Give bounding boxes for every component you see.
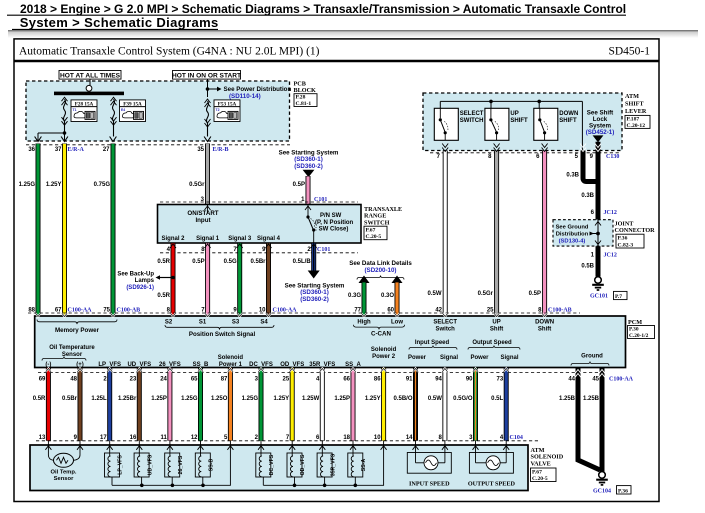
svg-text:11: 11: [161, 435, 168, 441]
svg-text:Signal 3: Signal 3: [228, 236, 252, 242]
svg-text:C100-AB: C100-AB: [117, 307, 141, 313]
svg-text:Memory Power: Memory Power: [55, 327, 100, 334]
svg-text:25: 25: [487, 307, 494, 313]
svg-text:0.5W: 0.5W: [427, 291, 441, 297]
svg-text:66: 66: [343, 377, 350, 383]
svg-text:ATM: ATM: [625, 93, 639, 100]
svg-text:1.25P: 1.25P: [151, 396, 167, 402]
svg-text:Position Switch Signal: Position Switch Signal: [189, 331, 256, 338]
svg-text:0.5G: 0.5G: [224, 259, 237, 265]
svg-text:0.5P: 0.5P: [192, 259, 204, 265]
svg-text:(SD200-10): (SD200-10): [365, 267, 397, 274]
svg-text:P.36: P.36: [618, 489, 628, 495]
svg-text:E/R-B: E/R-B: [213, 147, 229, 153]
svg-text:P.67: P.67: [366, 227, 376, 233]
svg-text:16: 16: [130, 435, 137, 441]
svg-text:0.3B: 0.3B: [566, 172, 579, 178]
svg-text:PCM: PCM: [628, 319, 642, 326]
svg-text:1.25Y: 1.25Y: [274, 396, 290, 402]
svg-text:Distribution: Distribution: [556, 231, 589, 237]
svg-text:27: 27: [103, 147, 110, 153]
svg-text:DOWN: DOWN: [559, 111, 578, 117]
svg-text:LP_VFS: LP_VFS: [118, 455, 124, 475]
svg-text:SWITCH: SWITCH: [364, 219, 390, 226]
svg-text:35: 35: [197, 147, 204, 153]
svg-text:0.5R: 0.5R: [33, 396, 46, 402]
svg-text:T2: T2: [216, 108, 220, 112]
svg-text:Power 2: Power 2: [372, 354, 396, 360]
svg-text:Output Speed: Output Speed: [472, 340, 512, 346]
svg-text:Signal 1: Signal 1: [196, 236, 220, 242]
svg-text:GC101: GC101: [590, 294, 608, 300]
svg-text:C-CAN: C-CAN: [371, 331, 391, 338]
svg-text:P.67: P.67: [532, 469, 542, 475]
svg-text:GC104: GC104: [593, 488, 611, 494]
svg-text:17: 17: [100, 435, 107, 441]
svg-text:C.81-1: C.81-1: [296, 101, 312, 107]
svg-text:See Ground: See Ground: [556, 224, 589, 230]
svg-text:12: 12: [191, 435, 198, 441]
svg-text:(SD360-2): (SD360-2): [300, 296, 329, 303]
svg-text:18: 18: [343, 435, 350, 441]
svg-text:Power: Power: [408, 355, 427, 361]
svg-text:86: 86: [374, 377, 381, 383]
svg-text:SS_B: SS_B: [193, 362, 209, 368]
svg-text:1.25B: 1.25B: [559, 396, 576, 402]
svg-text:0.5R: 0.5R: [157, 293, 170, 299]
svg-text:60: 60: [387, 307, 394, 313]
svg-text:C100-AA: C100-AA: [609, 377, 634, 383]
svg-text:Low: Low: [391, 319, 403, 325]
svg-text:T1: T1: [73, 108, 77, 112]
svg-text:1.25Y: 1.25Y: [46, 182, 62, 188]
svg-text:0.3O: 0.3O: [381, 293, 394, 299]
svg-text:10: 10: [374, 435, 381, 441]
svg-text:CONNECTOR: CONNECTOR: [615, 227, 656, 234]
svg-text:Shift: Shift: [490, 326, 503, 332]
svg-text:14: 14: [406, 435, 413, 441]
svg-text:VALVE: VALVE: [531, 460, 551, 467]
svg-text:42: 42: [435, 307, 442, 313]
svg-text:44: 44: [568, 377, 575, 383]
svg-text:0.5B: 0.5B: [581, 264, 594, 270]
svg-text:Power 1: Power 1: [219, 362, 243, 368]
svg-text:Oil Temperature: Oil Temperature: [49, 345, 95, 351]
svg-text:S2: S2: [165, 319, 173, 325]
svg-text:ON/START: ON/START: [187, 210, 218, 217]
svg-text:(SD130-4): (SD130-4): [559, 238, 586, 244]
svg-text:LEVER: LEVER: [625, 108, 647, 115]
svg-text:SS-B: SS-B: [209, 459, 215, 472]
svg-text:F39 15A: F39 15A: [123, 102, 142, 108]
svg-text:JC12: JC12: [604, 252, 617, 258]
svg-text:SHIFT: SHIFT: [510, 118, 528, 124]
svg-text:Oil Temp.: Oil Temp.: [51, 469, 77, 475]
svg-text:Solenoid: Solenoid: [371, 347, 397, 353]
svg-text:UD_VFS: UD_VFS: [147, 454, 153, 475]
svg-text:Sensor: Sensor: [62, 352, 83, 358]
svg-text:0.5G/O: 0.5G/O: [453, 396, 473, 402]
svg-text:E4: E4: [121, 108, 125, 112]
svg-text:65: 65: [191, 377, 198, 383]
svg-text:1.25P: 1.25P: [334, 396, 350, 402]
svg-text:C100-AA: C100-AA: [273, 307, 298, 313]
svg-text:Signal 4: Signal 4: [257, 236, 281, 242]
svg-text:0.5Br: 0.5Br: [62, 396, 78, 402]
svg-text:C101: C101: [314, 197, 327, 203]
svg-text:P.28: P.28: [296, 95, 306, 101]
svg-text:C100-AA: C100-AA: [68, 307, 93, 313]
svg-text:Solenoid: Solenoid: [218, 355, 244, 361]
svg-text:Sensor: Sensor: [54, 476, 74, 482]
svg-text:0.5P: 0.5P: [529, 291, 541, 297]
svg-text:Automatic Transaxle Control Sy: Automatic Transaxle Control System (G4NA…: [19, 46, 320, 58]
svg-text:35R_VFS: 35R_VFS: [330, 453, 336, 476]
svg-text:1.25Y: 1.25Y: [365, 396, 381, 402]
svg-text:SHIFT: SHIFT: [559, 118, 577, 124]
svg-text:C.20-5: C.20-5: [532, 476, 548, 482]
svg-text:48: 48: [70, 377, 77, 383]
svg-text:Ground: Ground: [581, 353, 603, 359]
svg-text:90: 90: [466, 377, 473, 383]
svg-text:0.5R: 0.5R: [157, 259, 170, 265]
svg-text:88: 88: [28, 307, 35, 313]
svg-text:Lamps: Lamps: [135, 278, 155, 284]
svg-text:91: 91: [406, 377, 413, 383]
svg-text:DOWN: DOWN: [535, 319, 554, 325]
svg-text:: SW Close): : SW Close): [315, 227, 348, 233]
svg-text:High: High: [357, 319, 371, 325]
svg-text:Input Speed: Input Speed: [415, 340, 450, 346]
svg-text:0.5W: 0.5W: [428, 396, 442, 402]
svg-text:C.20-12: C.20-12: [627, 123, 646, 129]
svg-text:UP: UP: [492, 319, 500, 325]
svg-text:77: 77: [354, 307, 361, 313]
svg-text:C130: C130: [606, 154, 619, 160]
svg-text:1.25O: 1.25O: [211, 396, 228, 402]
svg-text:SS-A: SS-A: [361, 459, 367, 472]
svg-text:C101: C101: [317, 247, 330, 253]
svg-text:P.187: P.187: [627, 116, 640, 122]
svg-text:45: 45: [592, 377, 599, 383]
svg-text:P.7: P.7: [615, 294, 622, 300]
svg-text:1.25G: 1.25G: [242, 396, 259, 402]
svg-text:OD_VFS: OD_VFS: [300, 454, 306, 475]
svg-text:E/R-A: E/R-A: [68, 147, 85, 153]
svg-text:See Back-Up: See Back-Up: [117, 272, 154, 278]
svg-text:25: 25: [283, 377, 290, 383]
svg-text:P/N SW: P/N SW: [320, 213, 342, 219]
svg-text:Input: Input: [195, 217, 210, 224]
svg-text:1.25B: 1.25B: [583, 396, 600, 402]
svg-text:S3: S3: [232, 319, 240, 325]
svg-text:SS_A: SS_A: [345, 362, 361, 368]
svg-text:UP: UP: [510, 111, 518, 117]
svg-text:HOT AT ALL TIMES: HOT AT ALL TIMES: [60, 73, 121, 80]
svg-text:0.3G: 0.3G: [348, 293, 361, 299]
svg-text:Shift: Shift: [538, 326, 551, 332]
svg-text:F53 15A: F53 15A: [218, 102, 237, 108]
svg-text:75: 75: [103, 307, 110, 313]
svg-text:JC12: JC12: [604, 210, 617, 216]
svg-text:Signal 2: Signal 2: [161, 236, 185, 242]
svg-text:23: 23: [130, 377, 137, 383]
svg-text:C.20-5: C.20-5: [366, 234, 382, 240]
svg-text:BLOCK: BLOCK: [294, 87, 317, 94]
svg-text:69: 69: [39, 377, 46, 383]
svg-text:Power: Power: [470, 355, 489, 361]
svg-text:(SD926-1): (SD926-1): [126, 285, 154, 291]
svg-text:1.25G: 1.25G: [181, 396, 198, 402]
svg-text:26_VFS: 26_VFS: [178, 455, 184, 474]
svg-text:1.25W: 1.25W: [302, 396, 320, 402]
svg-text:67: 67: [55, 307, 62, 313]
svg-text:36: 36: [28, 147, 35, 153]
svg-text:87: 87: [221, 377, 228, 383]
svg-text:0.5P: 0.5P: [293, 182, 305, 188]
svg-text:1.25Br: 1.25Br: [118, 396, 137, 402]
svg-text:0.5L/B: 0.5L/B: [293, 259, 312, 265]
svg-text:P.36: P.36: [618, 236, 628, 242]
svg-text:C.20-1/2: C.20-1/2: [629, 333, 649, 339]
svg-text:1.25G: 1.25G: [19, 182, 36, 188]
svg-text:10: 10: [259, 307, 266, 313]
svg-text:0.75G: 0.75G: [94, 182, 111, 188]
svg-text:SHIFT: SHIFT: [625, 100, 644, 107]
svg-text:DC_VFS: DC_VFS: [269, 454, 275, 475]
svg-text:0.5Gr: 0.5Gr: [189, 182, 205, 188]
svg-text:Signal: Signal: [440, 355, 458, 361]
svg-text:37: 37: [55, 147, 62, 153]
svg-text:94: 94: [435, 377, 442, 383]
svg-text:24: 24: [160, 377, 167, 383]
svg-text:OUTPUT SPEED: OUTPUT SPEED: [468, 480, 516, 487]
svg-text:P.30: P.30: [629, 327, 639, 333]
svg-text:0.5Gr: 0.5Gr: [478, 291, 494, 297]
svg-text:1.25L: 1.25L: [91, 396, 107, 402]
svg-text:0.3B: 0.3B: [581, 193, 594, 199]
svg-text:0.5B/O: 0.5B/O: [393, 396, 412, 402]
svg-text:(P, N Position: (P, N Position: [315, 220, 354, 226]
svg-text:(SD452-1): (SD452-1): [586, 129, 615, 136]
svg-text:SWITCH: SWITCH: [460, 118, 484, 124]
svg-text:S1: S1: [199, 319, 207, 325]
svg-text:C.82-3: C.82-3: [618, 243, 634, 249]
svg-text:HOT IN ON OR START: HOT IN ON OR START: [172, 73, 241, 80]
svg-text:C104: C104: [510, 435, 523, 441]
svg-text:C100-AB: C100-AB: [548, 307, 572, 313]
svg-text:13: 13: [39, 435, 46, 441]
svg-text:See Data Link Details: See Data Link Details: [349, 260, 412, 267]
svg-text:(SD360-2): (SD360-2): [294, 163, 323, 170]
svg-text:2018 > Engine > G 2.0 MPI > Sc: 2018 > Engine > G 2.0 MPI > Schematic Di…: [20, 2, 626, 16]
svg-text:0.5L: 0.5L: [491, 396, 503, 402]
svg-text:(SD110-14): (SD110-14): [229, 93, 261, 100]
svg-text:SD450-1: SD450-1: [608, 46, 650, 58]
svg-text:73: 73: [497, 377, 504, 383]
svg-text:Signal: Signal: [500, 355, 518, 361]
svg-text:0.5Br: 0.5Br: [250, 259, 266, 265]
svg-text:SELECT: SELECT: [433, 319, 457, 325]
svg-text:Switch: Switch: [436, 326, 456, 332]
svg-text:F28 15A: F28 15A: [75, 102, 94, 108]
svg-text:INPUT SPEED: INPUT SPEED: [409, 480, 450, 487]
svg-text:S4: S4: [260, 319, 268, 325]
svg-text:SELECT: SELECT: [460, 111, 484, 117]
svg-text:System > Schematic Diagrams: System > Schematic Diagrams: [20, 15, 219, 30]
svg-text:See Power Distribution: See Power Distribution: [224, 86, 292, 93]
